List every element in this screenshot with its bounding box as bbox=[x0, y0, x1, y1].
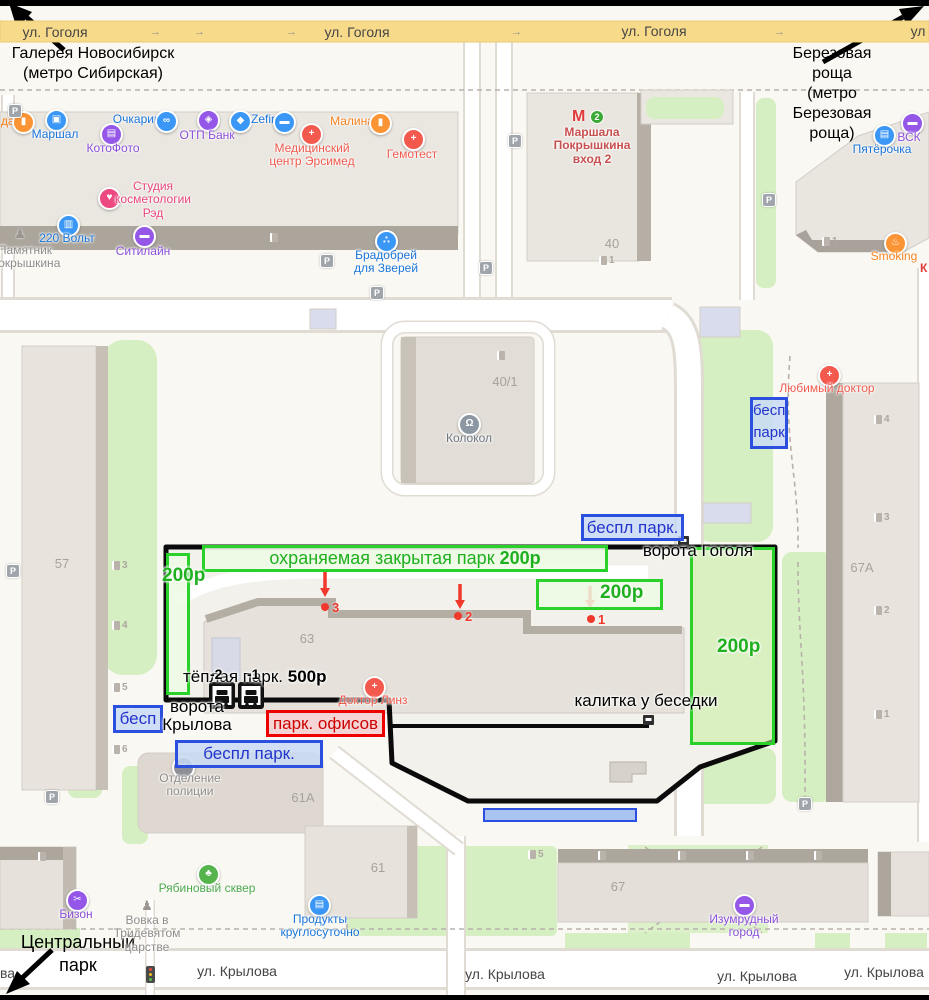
door-icon bbox=[746, 851, 754, 860]
parking-p-icon: P bbox=[508, 134, 522, 148]
building-number: 63 bbox=[300, 631, 314, 646]
door-icon bbox=[112, 745, 120, 754]
poi-label: Гемотест bbox=[387, 148, 438, 161]
entrance-marker: 6 bbox=[112, 744, 128, 755]
street-label-gogolya: ул. Гоголя bbox=[22, 24, 87, 40]
poi-label: Отделение полиции bbox=[159, 772, 220, 799]
parking-level-minus2: -2 bbox=[210, 667, 222, 682]
free-parking-stripe bbox=[483, 808, 637, 822]
guarded-parking-label: охраняемая закрытая парк bbox=[269, 548, 499, 568]
entrance-marker: 3 bbox=[112, 560, 128, 571]
door-icon bbox=[38, 852, 46, 861]
poi-label: Очкарик bbox=[113, 113, 159, 126]
monument-icon: ♟ bbox=[14, 226, 26, 242]
door-icon bbox=[528, 850, 536, 859]
entrance-marker: 5 bbox=[528, 849, 544, 860]
parking-p-icon: P bbox=[798, 797, 812, 811]
entrance-marker: 4 bbox=[874, 414, 890, 425]
door-icon bbox=[112, 621, 120, 630]
parking-p-icon: P bbox=[320, 254, 334, 268]
poi-label: Продукты круглосуточно bbox=[280, 913, 359, 940]
door-icon bbox=[822, 237, 830, 246]
poi-label: Доктор Линз bbox=[338, 694, 407, 707]
free-parking-box-north: беспл парк. bbox=[581, 514, 684, 541]
building-number: 57 bbox=[55, 556, 69, 571]
gogolya-street-band bbox=[0, 21, 929, 42]
road-direction-arrow: → bbox=[774, 26, 785, 38]
poi-label: Студия косметологии Рэд bbox=[115, 180, 191, 220]
entrance-marker: 1 bbox=[814, 850, 830, 861]
parking-p-icon: P bbox=[45, 790, 59, 804]
cup-icon: ▮ bbox=[369, 112, 392, 135]
building-number: 40 bbox=[605, 236, 619, 251]
street-label-krylova: ул. Крылова bbox=[197, 963, 277, 979]
poi-label: Smoking bbox=[871, 250, 918, 263]
office-parking-box: парк. офисов bbox=[266, 710, 385, 737]
road-direction-arrow: → bbox=[511, 26, 522, 38]
door-icon bbox=[874, 606, 882, 615]
guarded-parking-price: 200р bbox=[500, 548, 541, 568]
parking-p-icon: P bbox=[370, 286, 384, 300]
car-icon: ▬ bbox=[273, 111, 296, 134]
poi-label: Памятник Покрышкина bbox=[0, 244, 60, 271]
poi-label: Zefir bbox=[251, 113, 275, 126]
street-label-krylova: ул. Крылова bbox=[717, 968, 797, 984]
entrance-marker: 4 bbox=[112, 620, 128, 631]
entrance-marker: 3 bbox=[678, 850, 694, 861]
poi-label: Ситилайн bbox=[116, 245, 171, 258]
poi-label: ОТП Банк bbox=[179, 129, 234, 142]
building-number: 61 bbox=[371, 860, 385, 875]
warm-parking-price: 500р bbox=[288, 667, 327, 686]
parking-zone-200-middle-price: 200р bbox=[600, 582, 643, 604]
door-icon bbox=[599, 256, 607, 265]
warm-parking-text: тёплая парк. bbox=[183, 667, 288, 686]
gate-krylova-label: ворота Крылова bbox=[162, 698, 231, 735]
bottom-frame-bar bbox=[0, 995, 929, 1000]
building-number: 40/1 bbox=[492, 374, 517, 389]
entrance-point-2: 2 bbox=[465, 609, 472, 624]
parking-p-icon: P bbox=[762, 193, 776, 207]
wicket-label: калитка у беседки bbox=[574, 692, 717, 710]
destination-galereya: Галерея Новосибирск (метро Сибирская) bbox=[12, 44, 174, 84]
entrance-marker bbox=[497, 351, 505, 360]
road-direction-arrow: → bbox=[286, 26, 297, 38]
door-icon bbox=[598, 851, 606, 860]
poi-label: Вовка в Тридевятом царстве bbox=[114, 914, 181, 954]
glasses-icon: ∞ bbox=[155, 110, 178, 133]
street-label-krylova: ул. Крылова bbox=[844, 964, 924, 980]
poi-label: Изумрудный город bbox=[709, 913, 778, 940]
poi-label: Маршал bbox=[32, 128, 79, 141]
street-label-krylova: ул. Крылова bbox=[465, 966, 545, 982]
door-icon bbox=[112, 561, 120, 570]
building-number: 67 bbox=[611, 879, 625, 894]
entrance-marker: 2 bbox=[874, 605, 890, 616]
poi-label: Бизон bbox=[59, 908, 92, 921]
free-parking-box-south: беспл парк. bbox=[175, 740, 323, 768]
metro-line-badge: 2 bbox=[590, 110, 604, 124]
entrance-point-3: 3 bbox=[332, 600, 339, 615]
entrance-marker: 1 bbox=[38, 851, 54, 862]
free-parking-box-west: бесп bbox=[113, 705, 163, 733]
gate-gogolya-label: ворота Гоголя bbox=[643, 542, 753, 560]
poi-label: Медицинский центр Эрсимед bbox=[269, 142, 354, 169]
poi-label: Пятёрочка bbox=[853, 143, 912, 156]
door-icon bbox=[678, 851, 686, 860]
monument-icon: ♟ bbox=[141, 898, 153, 914]
traffic-light-icon bbox=[146, 966, 155, 983]
entrance-point-1: 1 bbox=[598, 612, 605, 627]
street-label-krylova-frag: ва bbox=[0, 965, 15, 981]
road-direction-arrow: → bbox=[150, 26, 161, 38]
entrance-marker: 6 bbox=[270, 232, 286, 243]
door-icon bbox=[874, 513, 882, 522]
free-parking-box-northeast: бесп парк bbox=[750, 397, 788, 449]
building-number: 61А bbox=[291, 790, 314, 805]
poi-label-fragment: К bbox=[920, 261, 927, 275]
entrance-marker: 1 bbox=[822, 236, 838, 247]
poi-label: ВСК bbox=[897, 131, 920, 144]
poi-label: Брадобрей для Зверей bbox=[354, 249, 418, 276]
poi-label: Малина bbox=[330, 115, 374, 128]
map-screenshot: ул. Гоголя ул. Гоголя ул. Гоголя ул → → … bbox=[0, 0, 929, 1000]
parking-zone-200-right: 200р bbox=[690, 547, 775, 745]
door-icon bbox=[874, 710, 882, 719]
guarded-parking-banner: охраняемая закрытая парк 200р bbox=[202, 545, 608, 572]
door-icon bbox=[497, 351, 505, 360]
metro-icon: М bbox=[572, 108, 585, 126]
entrance-marker: 3 bbox=[874, 512, 890, 523]
parking-p-icon: P bbox=[479, 261, 493, 275]
road-direction-arrow: → bbox=[194, 26, 205, 38]
poi-label-metro: Маршала Покрышкина вход 2 bbox=[554, 126, 631, 166]
parking-p-icon: P bbox=[6, 564, 20, 578]
poi-label: Колокол bbox=[446, 432, 492, 445]
door-icon bbox=[270, 233, 278, 242]
entrance-marker: 1 bbox=[874, 709, 890, 720]
scooter-icon: ◆ bbox=[229, 110, 252, 133]
parking-p-icon: P bbox=[8, 104, 22, 118]
entrance-marker: 4 bbox=[598, 850, 614, 861]
door-icon bbox=[112, 683, 120, 692]
street-label-gogolya: ул. Гоголя bbox=[324, 24, 389, 40]
entrance-marker: 2 bbox=[746, 850, 762, 861]
entrance-marker: 1 bbox=[599, 255, 615, 266]
door-icon bbox=[874, 415, 882, 424]
parking-zone-200-left-price: 200р bbox=[162, 565, 205, 587]
parking-level-minus1: -1 bbox=[247, 667, 259, 682]
poi-label: Любимый доктор bbox=[779, 382, 874, 395]
poi-label: КотоФото bbox=[86, 142, 139, 155]
door-icon bbox=[814, 851, 822, 860]
entrance-marker: 5 bbox=[112, 682, 128, 693]
poi-label: Рябиновый сквер bbox=[159, 882, 256, 895]
parking-zone-200-right-price: 200р bbox=[717, 636, 760, 658]
destination-berezovaya: Березовая роща (метро Березовая роща) bbox=[784, 44, 881, 144]
street-label-gogolya-frag: ул bbox=[911, 23, 926, 39]
building-number: 67А bbox=[850, 560, 873, 575]
top-frame-bar bbox=[0, 0, 929, 6]
street-label-gogolya: ул. Гоголя bbox=[621, 23, 686, 39]
